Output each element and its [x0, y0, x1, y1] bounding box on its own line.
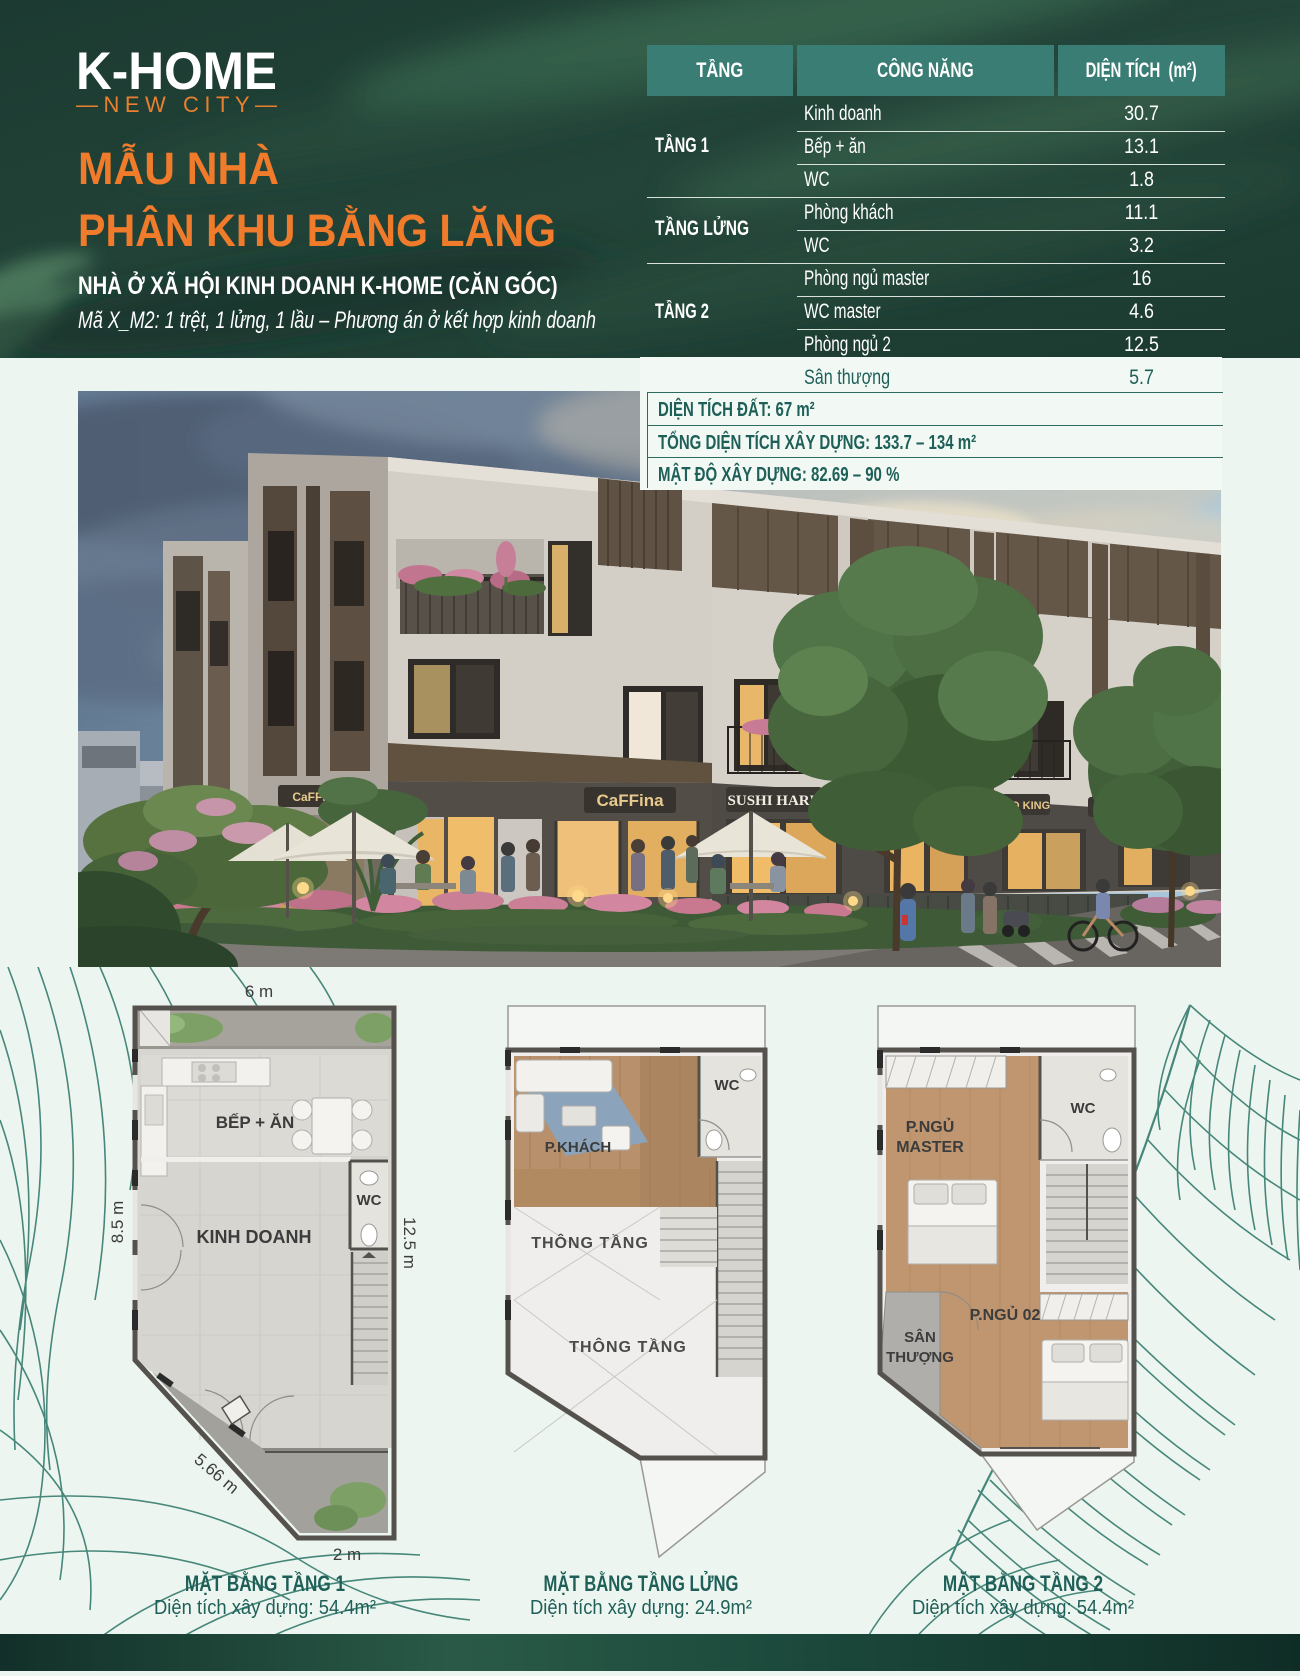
svg-text:P.NGỦ 02: P.NGỦ 02	[970, 1305, 1041, 1324]
svg-text:WC: WC	[1071, 1100, 1096, 1117]
svg-text:THÔNG TẦNG: THÔNG TẦNG	[531, 1233, 649, 1252]
svg-text:8.5 m: 8.5 m	[108, 1201, 127, 1244]
svg-text:THÔNG TẦNG: THÔNG TẦNG	[569, 1337, 687, 1356]
svg-text:WC: WC	[357, 1192, 382, 1209]
svg-text:SÂN: SÂN	[904, 1328, 936, 1346]
svg-text:2 m: 2 m	[333, 1545, 361, 1564]
svg-text:THƯỢNG: THƯỢNG	[886, 1349, 954, 1366]
svg-text:MASTER: MASTER	[896, 1139, 964, 1156]
svg-text:12.5 m: 12.5 m	[400, 1217, 419, 1269]
svg-text:CaFFina: CaFFina	[596, 791, 664, 810]
svg-text:WC: WC	[715, 1077, 740, 1094]
svg-text:BẾP + ĂN: BẾP + ĂN	[216, 1113, 295, 1132]
svg-text:KINH DOANH: KINH DOANH	[197, 1227, 312, 1247]
svg-text:P.KHÁCH: P.KHÁCH	[545, 1139, 611, 1156]
svg-text:P.NGỦ: P.NGỦ	[906, 1117, 955, 1136]
svg-text:6 m: 6 m	[245, 982, 273, 1001]
svg-text:SUSHI HARU: SUSHI HARU	[728, 793, 821, 809]
